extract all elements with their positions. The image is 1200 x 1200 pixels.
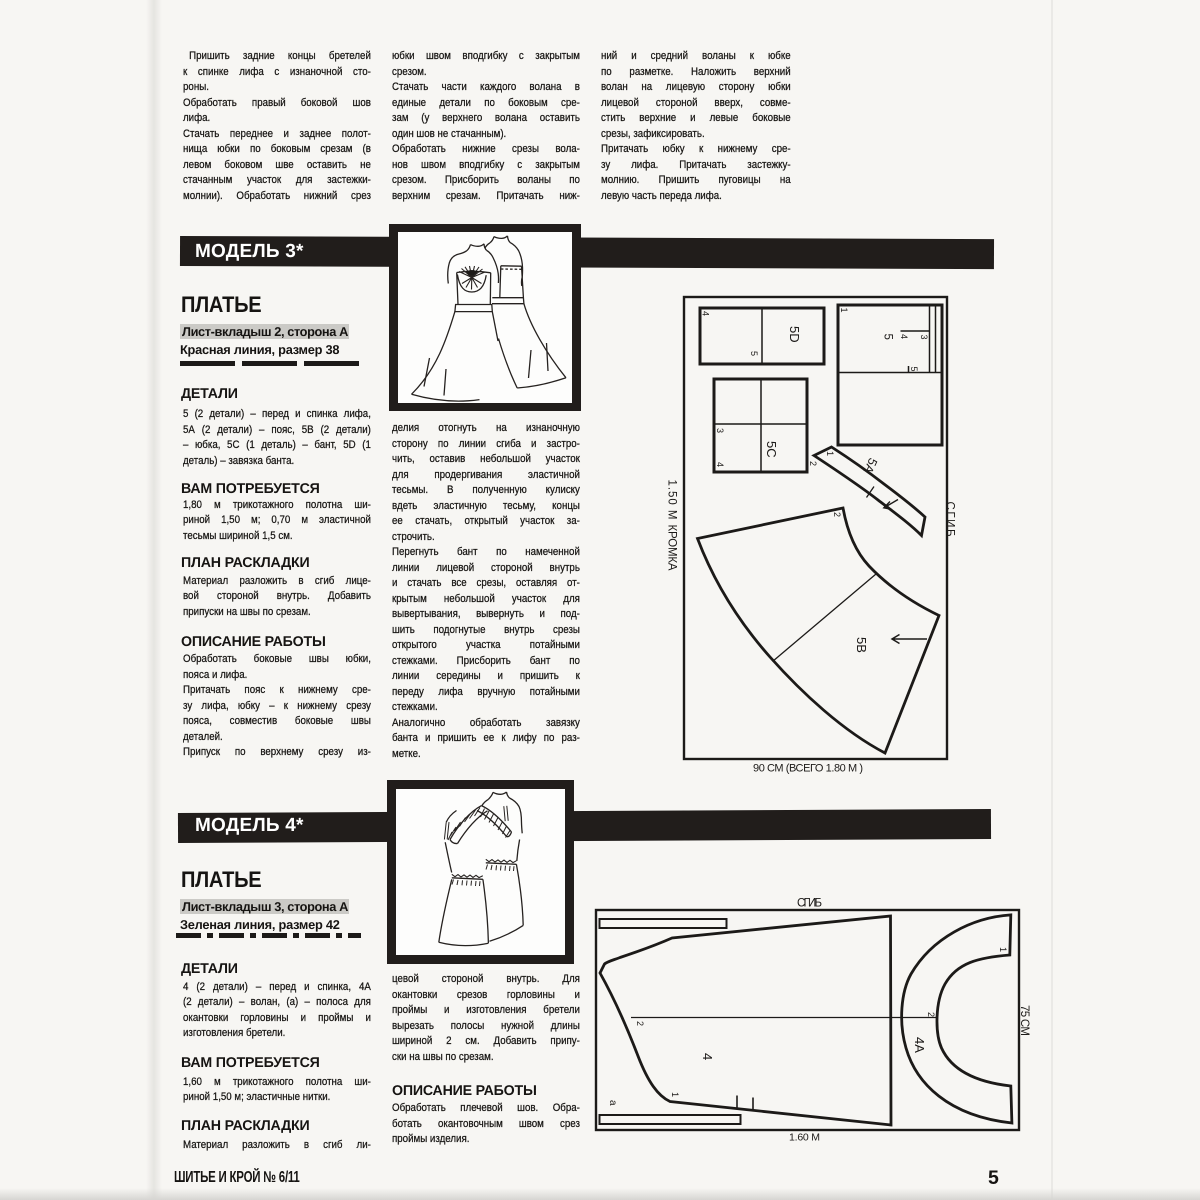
svg-text:4А: 4А xyxy=(912,1037,927,1053)
svg-text:90 СМ (ВСЕГО 1.80 М ): 90 СМ (ВСЕГО 1.80 М ) xyxy=(753,763,863,775)
svg-text:5D: 5D xyxy=(787,326,802,343)
svg-text:2: 2 xyxy=(635,1021,645,1026)
svg-text:5: 5 xyxy=(749,351,759,356)
svg-text:4: 4 xyxy=(899,334,909,339)
svg-text:1: 1 xyxy=(825,451,835,456)
svg-text:5C: 5C xyxy=(764,441,779,458)
svg-text:4: 4 xyxy=(715,462,725,467)
svg-text:2: 2 xyxy=(926,1012,936,1017)
svg-text:1: 1 xyxy=(839,308,849,313)
svg-text:1.50 М: 1.50 М xyxy=(666,480,678,520)
svg-text:1.60 М: 1.60 М xyxy=(789,1132,820,1144)
svg-text:4: 4 xyxy=(700,1053,715,1060)
svg-text:а: а xyxy=(607,1100,618,1106)
svg-text:5: 5 xyxy=(909,367,919,372)
svg-text:2: 2 xyxy=(832,512,842,517)
svg-text:СГИБ: СГИБ xyxy=(797,898,822,910)
svg-text:4: 4 xyxy=(701,311,711,316)
svg-text:1: 1 xyxy=(998,947,1008,952)
svg-text:2: 2 xyxy=(808,461,818,466)
svg-text:КРОМКА: КРОМКА xyxy=(666,525,678,571)
svg-text:1: 1 xyxy=(670,1092,680,1097)
svg-text:5: 5 xyxy=(882,334,894,340)
svg-text:75 СМ: 75 СМ xyxy=(1018,1005,1030,1036)
svg-text:СГИБ: СГИБ xyxy=(944,502,956,537)
svg-text:5В: 5В xyxy=(854,637,869,653)
svg-text:5А: 5А xyxy=(861,456,880,476)
svg-text:3: 3 xyxy=(919,335,929,340)
svg-text:3: 3 xyxy=(715,428,725,433)
